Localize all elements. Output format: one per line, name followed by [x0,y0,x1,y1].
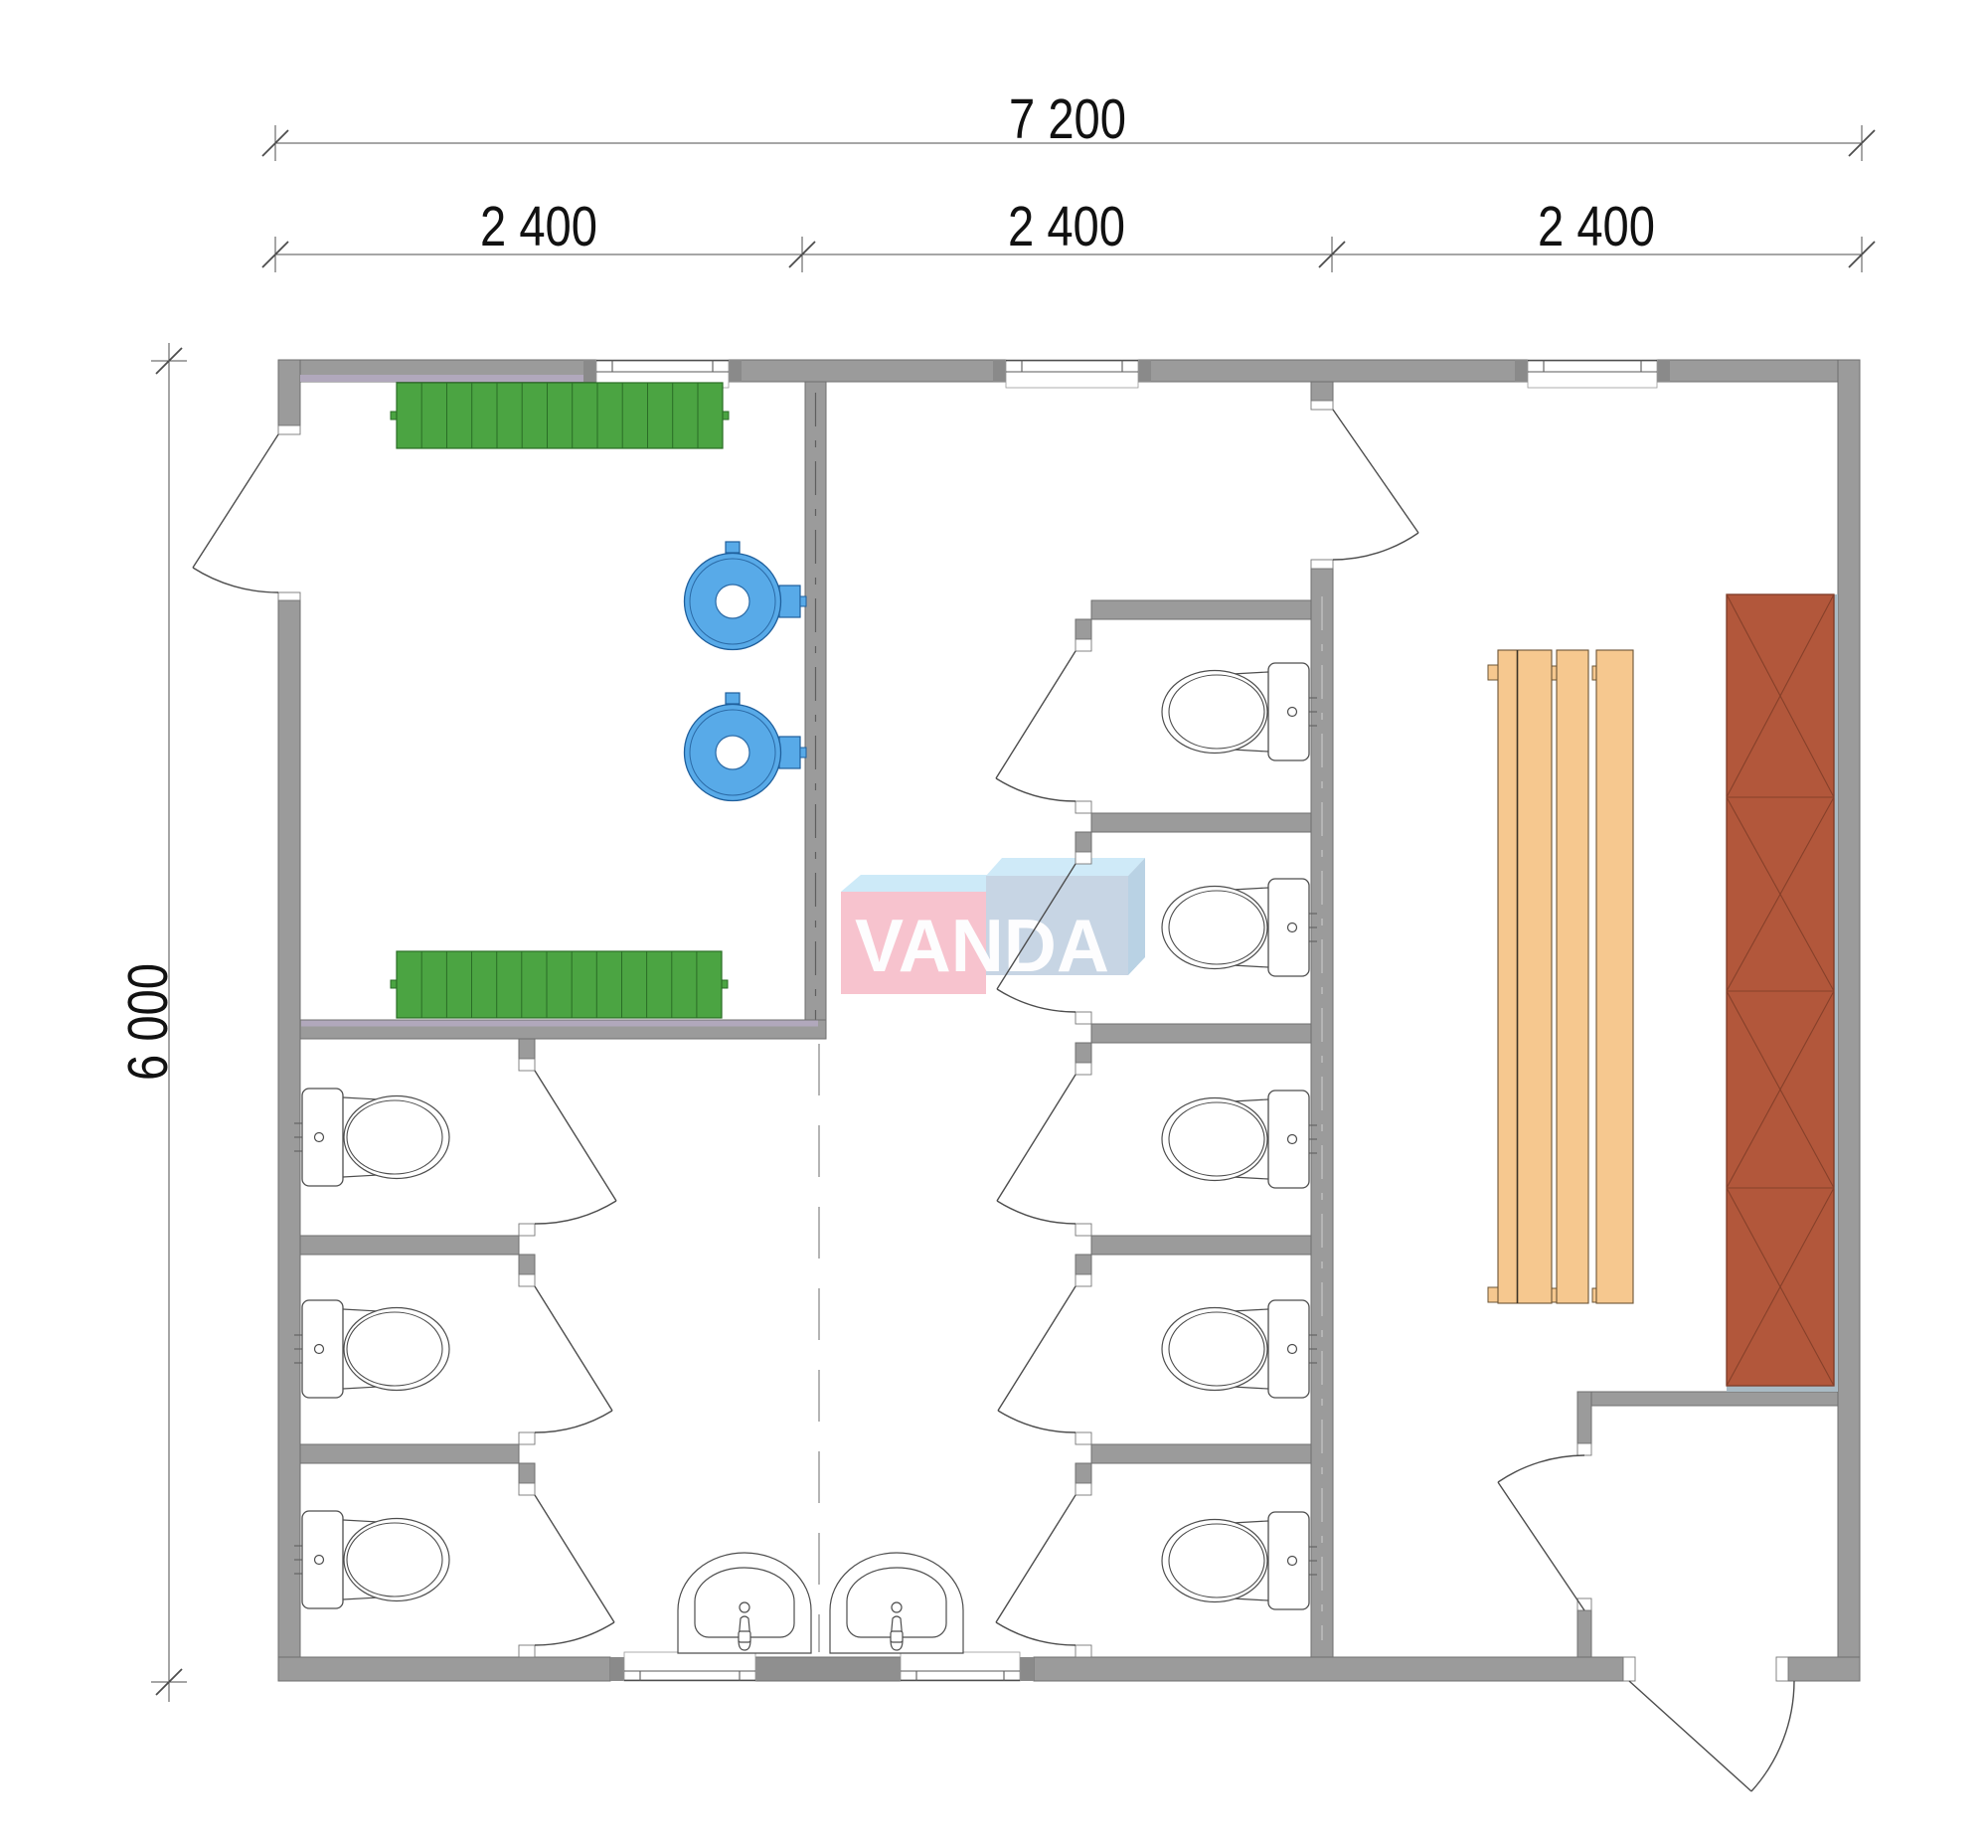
svg-text:6 000: 6 000 [116,963,180,1081]
svg-text:2 400: 2 400 [1008,195,1125,258]
svg-text:VANDA: VANDA [855,904,1109,987]
svg-text:2 400: 2 400 [480,195,597,258]
svg-text:2 400: 2 400 [1538,195,1655,258]
svg-text:7 200: 7 200 [1009,87,1126,151]
